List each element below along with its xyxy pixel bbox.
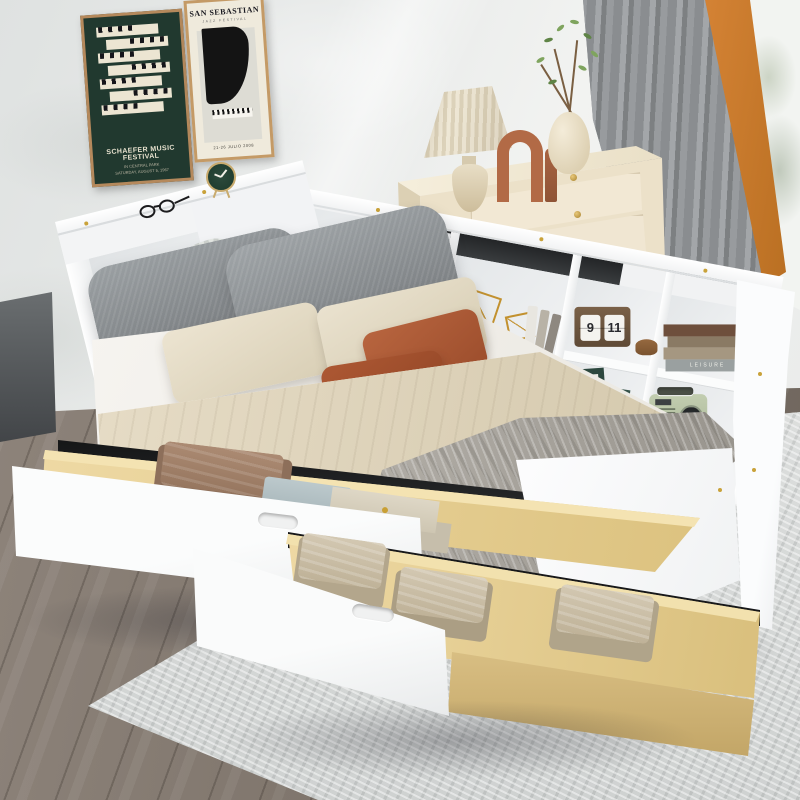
gold-screw (718, 488, 722, 492)
clock-leg (226, 190, 231, 198)
radio-handle (657, 387, 693, 395)
gold-screw (758, 372, 762, 376)
bedroom-product-photo: SCHAEFER MUSIC FESTIVAL IN CENTRAL PARK … (0, 0, 800, 800)
drawer-2-shadow (220, 700, 700, 780)
san-sebastian-poster: SAN SEBASTIAN JAZZ FESTIVAL 21-26 JULIO … (183, 0, 274, 163)
clock-leg (213, 190, 218, 198)
piano-keys-graphic (94, 23, 176, 119)
calendar-split-line (579, 328, 625, 329)
wooden-trinket-box (635, 339, 657, 355)
glasses-temple (174, 196, 189, 204)
arch-sculpture (497, 130, 543, 202)
flip-calendar: 9 11 (574, 307, 630, 347)
san-sebastian-date: 21-26 JULIO 2008 (197, 141, 271, 151)
gold-screw (752, 468, 756, 472)
desk-clock (206, 162, 238, 198)
box-clasp (382, 507, 389, 514)
wall-gap-shadow (0, 292, 60, 442)
vase (548, 112, 590, 174)
dresser-knob-1 (570, 174, 577, 181)
schaefer-poster: SCHAEFER MUSIC FESTIVAL IN CENTRAL PARK … (80, 9, 194, 188)
radio-label (655, 399, 671, 405)
dresser-knob-2 (574, 211, 581, 218)
